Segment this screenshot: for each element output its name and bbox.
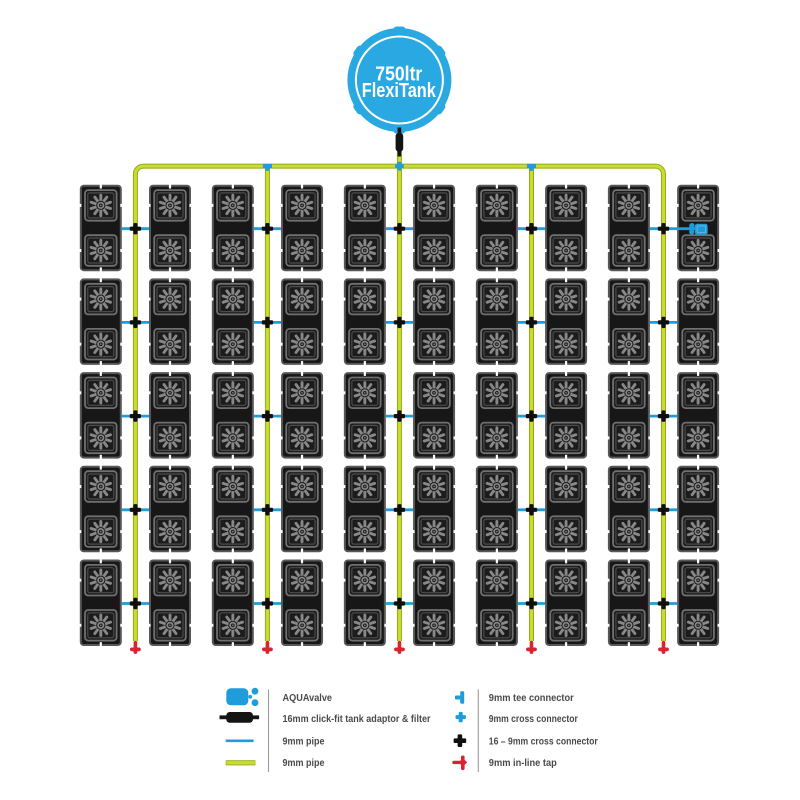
svg-text:9mm tee connector: 9mm tee connector — [489, 693, 574, 704]
svg-text:AQUAvalve: AQUAvalve — [283, 693, 333, 704]
svg-text:9mm cross connector: 9mm cross connector — [489, 714, 578, 725]
svg-text:9mm pipe: 9mm pipe — [283, 736, 325, 747]
svg-text:16mm click-fit tank adaptor &: 16mm click-fit tank adaptor & filter — [283, 714, 431, 725]
svg-text:16 – 9mm cross connector: 16 – 9mm cross connector — [489, 736, 598, 747]
svg-text:FlexiTank: FlexiTank — [362, 79, 436, 102]
svg-text:9mm pipe: 9mm pipe — [283, 758, 325, 769]
svg-text:9mm in-line tap: 9mm in-line tap — [489, 758, 557, 769]
